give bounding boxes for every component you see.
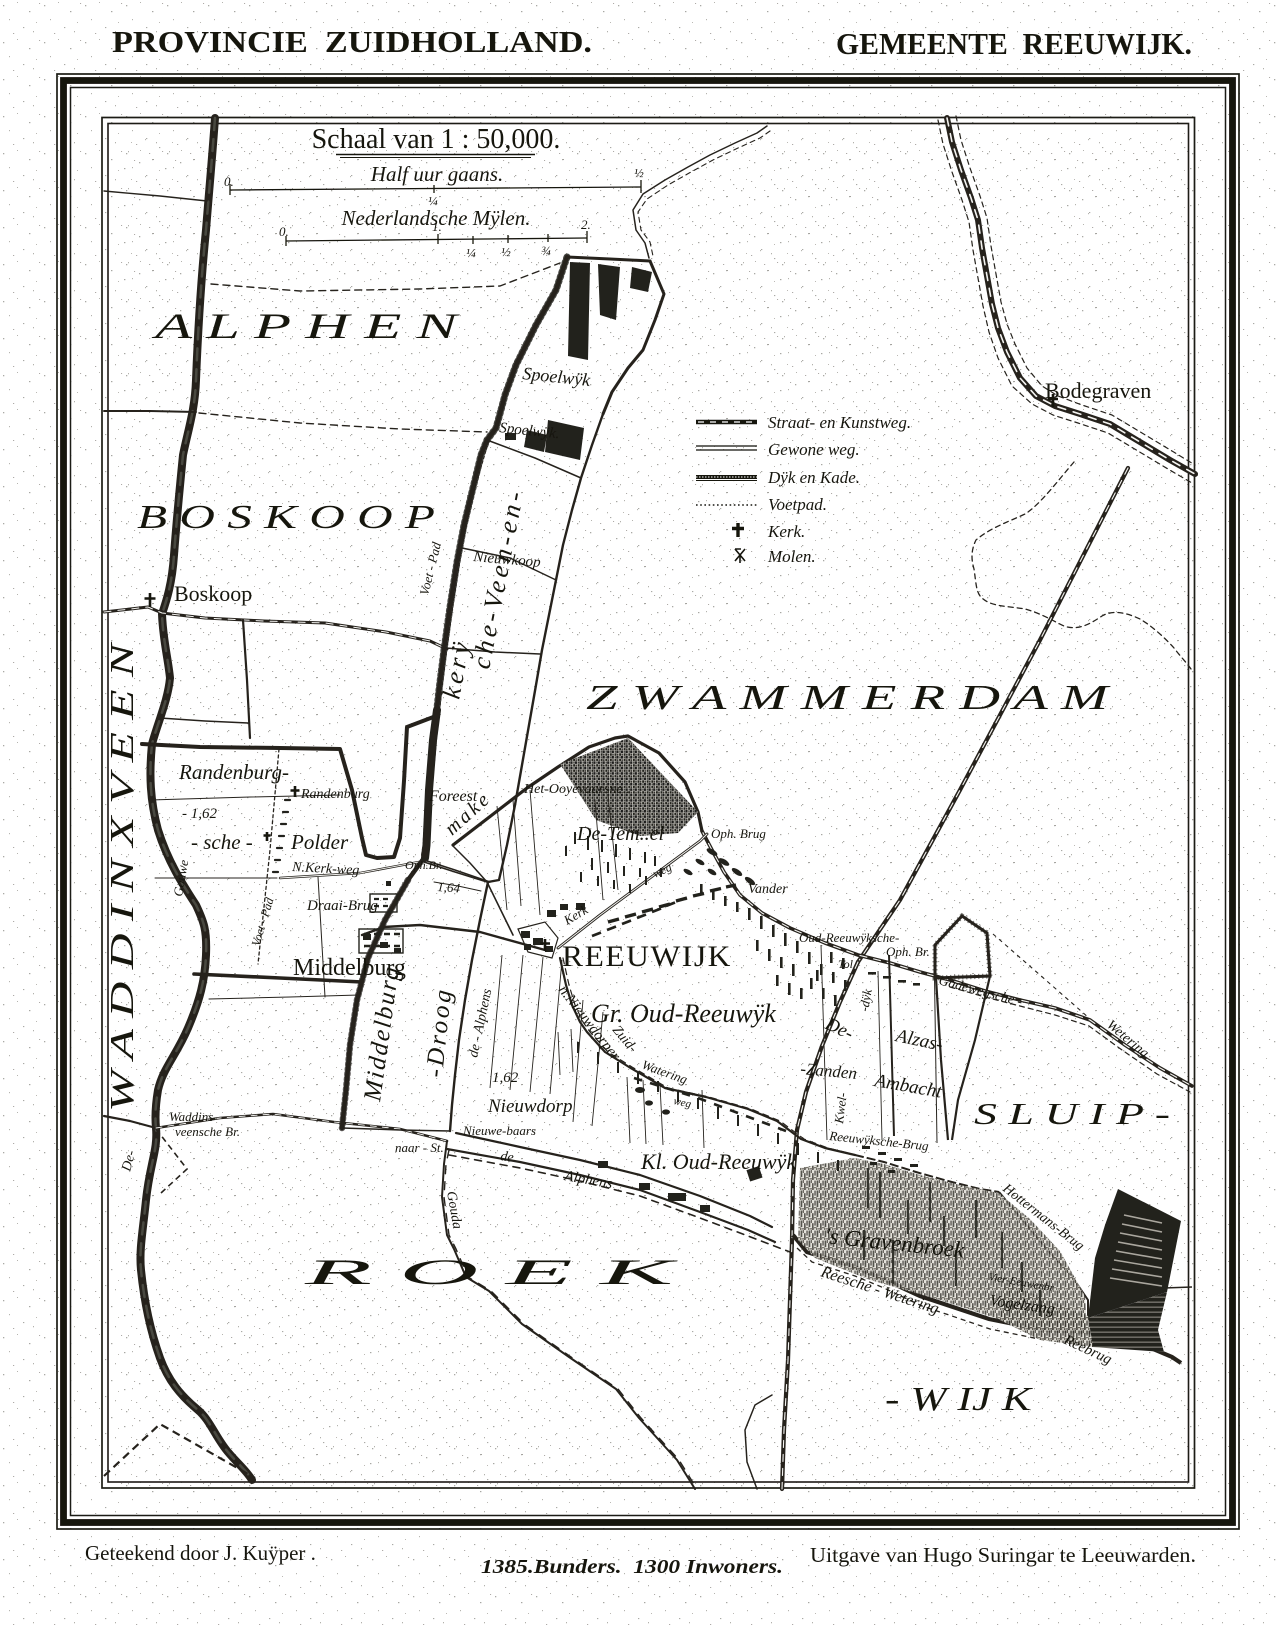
svg-text:Voetpad.: Voetpad.: [768, 495, 827, 514]
svg-text:A L P H E N: A L P H E N: [152, 306, 461, 346]
svg-text:- sche -: - sche -: [191, 830, 253, 854]
svg-text:Nieuwe-baars: Nieuwe-baars: [462, 1123, 536, 1138]
svg-text:Bodegraven: Bodegraven: [1045, 378, 1151, 403]
svg-text:B O S K O O P: B O S K O O P: [137, 499, 435, 536]
svg-text:¾: ¾: [541, 243, 551, 258]
svg-text:veensche Br.: veensche Br.: [175, 1124, 240, 1139]
svg-text:Vander: Vander: [748, 882, 788, 897]
svg-text:W A D D I N X V E E N: W A D D I N X V E E N: [104, 641, 141, 1112]
svg-text:0.: 0.: [224, 174, 234, 189]
svg-text:1,62: 1,62: [492, 1070, 519, 1086]
svg-text:Oph. Brug: Oph. Brug: [711, 826, 766, 841]
svg-text:0.: 0.: [279, 224, 289, 239]
svg-text:¼: ¼: [466, 245, 476, 260]
svg-text:PROVINCIE ZUIDHOLLAND.: PROVINCIE ZUIDHOLLAND.: [112, 24, 592, 59]
svg-text:Schaal van 1 : 50,000.: Schaal van 1 : 50,000.: [312, 124, 561, 155]
svg-text:Waddins-: Waddins-: [169, 1109, 218, 1124]
svg-text:Gewone weg.: Gewone weg.: [768, 440, 860, 459]
svg-text:Polder: Polder: [290, 830, 349, 854]
svg-text:2.: 2.: [581, 217, 591, 232]
svg-text:1385.Bunders. 1300 Inwoners.: 1385.Bunders. 1300 Inwoners.: [481, 1556, 783, 1578]
svg-text:Boskoop: Boskoop: [174, 581, 252, 606]
svg-text:½: ½: [501, 244, 511, 259]
svg-text:Oud-Reeuwÿksche-: Oud-Reeuwÿksche-: [799, 930, 899, 945]
svg-text:1,64: 1,64: [437, 879, 461, 896]
svg-text:- W IJ K: - W IJ K: [885, 1381, 1034, 1418]
svg-text:Het-Ooyevaarsne..: Het-Ooyevaarsne..: [523, 782, 630, 797]
svg-text:Randenburg-: Randenburg-: [178, 760, 289, 784]
svg-text:Draai-Brug: Draai-Brug: [306, 898, 378, 914]
svg-text:Kl. Oud-Reeuwÿk: Kl. Oud-Reeuwÿk: [640, 1149, 797, 1174]
svg-text:1.: 1.: [432, 219, 442, 234]
svg-text:Oph.Br.: Oph.Br.: [405, 858, 442, 872]
svg-text:Randenburg: Randenburg: [300, 787, 370, 802]
svg-text:de: de: [499, 1149, 514, 1166]
svg-text:naar - St.: naar - St.: [395, 1140, 444, 1155]
svg-text:Z W A M M E R D A M: Z W A M M E R D A M: [586, 678, 1111, 717]
svg-text:Uitgave van Hugo Suringar te L: Uitgave van Hugo Suringar te Leeuwarden.: [810, 1543, 1196, 1567]
svg-text:½: ½: [634, 165, 644, 180]
svg-text:R O E K: R O E K: [302, 1252, 679, 1292]
svg-text:GEMEENTE REEUWIJK.: GEMEENTE REEUWIJK.: [836, 26, 1192, 61]
svg-text:Kerk.: Kerk.: [767, 522, 805, 541]
svg-text:De-Tem..el: De-Tem..el: [576, 823, 664, 845]
svg-text:Oph. Br.: Oph. Br.: [886, 944, 930, 959]
svg-text:REEUWIJK: REEUWIJK: [562, 940, 732, 973]
svg-text:Straat- en Kunstweg.: Straat- en Kunstweg.: [768, 413, 911, 432]
svg-text:Geteekend door J. Kuÿper .: Geteekend door J. Kuÿper .: [85, 1541, 316, 1565]
svg-text:Tol: Tol: [838, 957, 854, 971]
svg-text:Molen.: Molen.: [767, 547, 816, 566]
svg-text:- 1,62: - 1,62: [182, 806, 217, 822]
svg-text:Half uur gaans.: Half uur gaans.: [370, 162, 503, 186]
svg-text:S L U I P -: S L U I P -: [974, 1096, 1170, 1131]
svg-text:Nieuwdorp: Nieuwdorp: [487, 1096, 572, 1117]
svg-text:Dÿk en Kade.: Dÿk en Kade.: [767, 468, 860, 487]
